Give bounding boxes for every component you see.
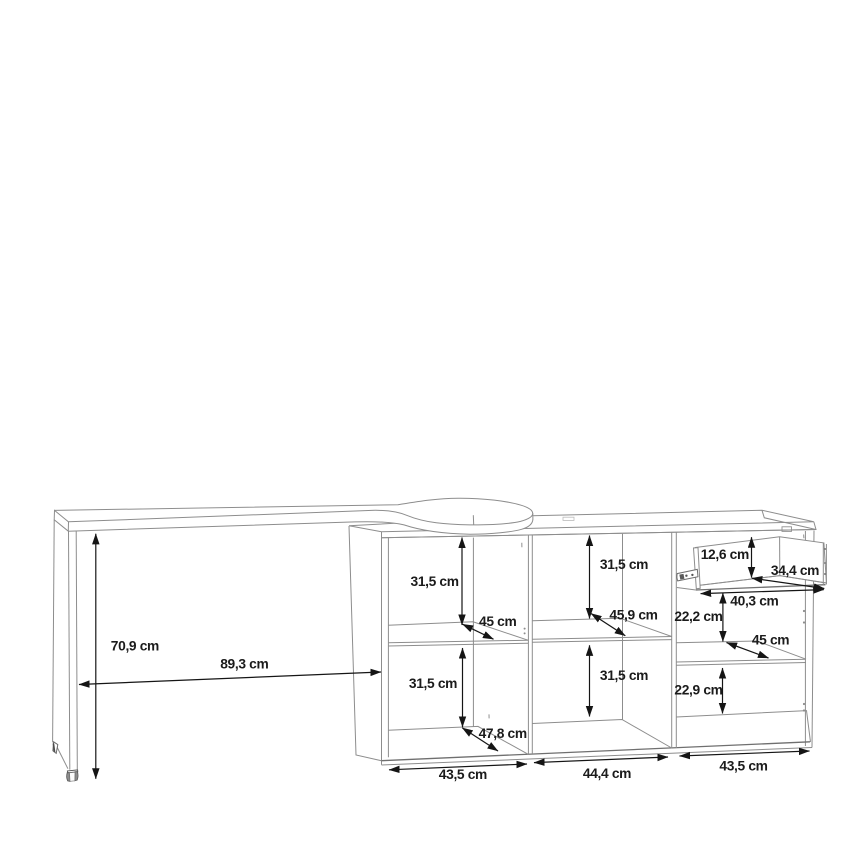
svg-text:31,5 cm: 31,5 cm <box>409 676 457 691</box>
svg-text:31,5 cm: 31,5 cm <box>600 668 648 683</box>
svg-text:45 cm: 45 cm <box>752 633 789 648</box>
svg-text:22,2 cm: 22,2 cm <box>674 609 722 624</box>
svg-text:43,5 cm: 43,5 cm <box>719 759 767 774</box>
svg-text:34,4 cm: 34,4 cm <box>771 563 819 578</box>
svg-text:31,5 cm: 31,5 cm <box>411 574 459 589</box>
svg-text:45,9 cm: 45,9 cm <box>609 608 657 623</box>
svg-text:89,3 cm: 89,3 cm <box>220 656 268 671</box>
svg-text:31,5 cm: 31,5 cm <box>600 557 648 572</box>
svg-text:22,9 cm: 22,9 cm <box>674 683 722 698</box>
svg-text:47,8 cm: 47,8 cm <box>479 726 527 741</box>
svg-text:45 cm: 45 cm <box>479 614 516 629</box>
svg-text:70,9 cm: 70,9 cm <box>111 639 159 654</box>
svg-text:40,3 cm: 40,3 cm <box>730 594 778 609</box>
svg-text:12,6 cm: 12,6 cm <box>701 547 749 562</box>
svg-text:43,5 cm: 43,5 cm <box>439 767 487 782</box>
svg-text:44,4 cm: 44,4 cm <box>583 766 631 781</box>
